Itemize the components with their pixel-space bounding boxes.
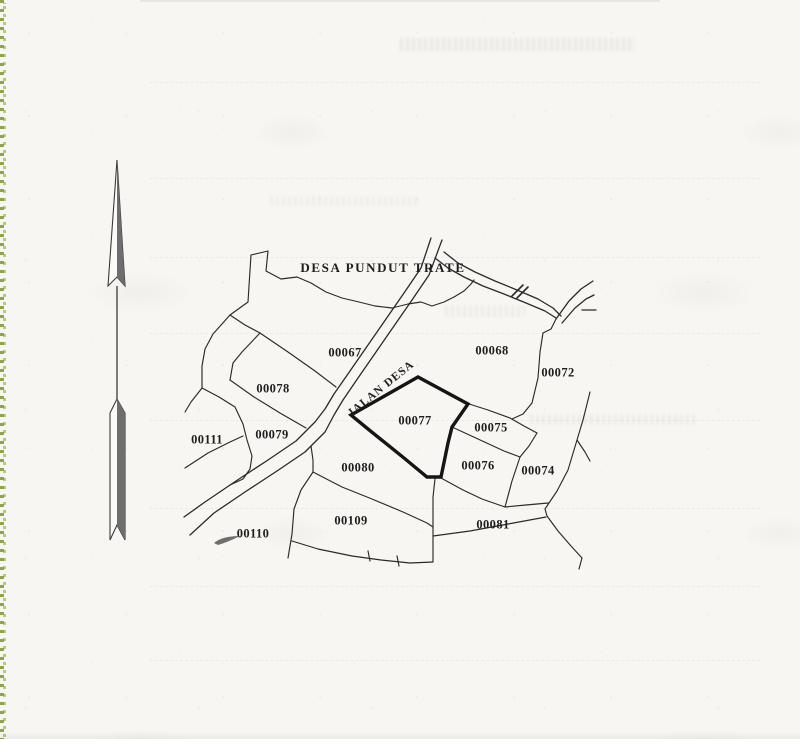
- parcel-label-00076: 00076: [461, 459, 494, 474]
- parcel-label-00077: 00077: [398, 414, 431, 429]
- parcel-label-00075: 00075: [474, 421, 507, 436]
- road-fork-lower: [562, 295, 594, 323]
- parcel-label-00109: 00109: [334, 514, 367, 529]
- parcel-label-00067: 00067: [328, 346, 361, 361]
- parcel-label-00072: 00072: [541, 366, 574, 381]
- parcel-label-00081: 00081: [476, 518, 509, 533]
- survey-tick: [397, 556, 399, 566]
- north-arrow-icon: [108, 160, 125, 540]
- parcel-boundaries: [185, 251, 590, 569]
- survey-tick: [368, 551, 370, 561]
- parcel-label-00078: 00078: [256, 382, 289, 397]
- parcel-label-00111: 00111: [191, 433, 223, 448]
- parcel-label-00074: 00074: [521, 464, 554, 479]
- road-fork-upper: [556, 281, 593, 319]
- parcel-label-00080: 00080: [341, 461, 374, 476]
- parcel-label-00068: 00068: [475, 344, 508, 359]
- scanned-map-page: DESA PUNDUT TRATE JALAN DESA 00067 00068…: [0, 0, 800, 739]
- parcel-label-00110: 00110: [237, 527, 270, 542]
- parcel-label-00079: 00079: [255, 428, 288, 443]
- village-name-label: DESA PUNDUT TRATE: [300, 260, 465, 276]
